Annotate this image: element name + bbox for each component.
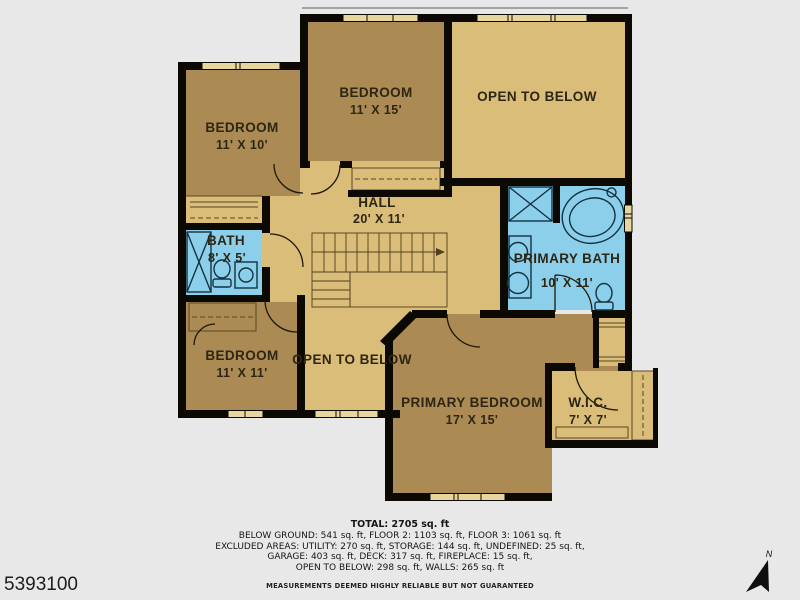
label-bath: BATH — [207, 233, 245, 248]
dims-bedroom-top-left: 11' X 10' — [216, 138, 268, 152]
label-hall: HALL — [358, 195, 396, 210]
label-primary-bath: PRIMARY BATH — [514, 251, 621, 266]
linen-closet — [599, 318, 625, 366]
area-summary: TOTAL: 2705 sq. ft BELOW GROUND: 541 sq.… — [0, 519, 800, 590]
label-bedroom-bottom-left: BEDROOM — [205, 348, 278, 363]
label-bedroom-top-left: BEDROOM — [205, 120, 278, 135]
toilet-icon — [596, 284, 612, 303]
dims-bedroom-top-center: 11' X 15' — [350, 103, 402, 117]
label-open-to-below-top: OPEN TO BELOW — [477, 89, 597, 104]
floor-plan-page: BEDROOM 11' X 10' BEDROOM 11' X 15' OPEN… — [0, 0, 800, 600]
listing-id: 5393100 — [4, 574, 78, 596]
area-line: EXCLUDED AREAS: UTILITY: 270 sq. ft, STO… — [0, 542, 800, 553]
floor-plan: BEDROOM 11' X 10' BEDROOM 11' X 15' OPEN… — [0, 0, 800, 600]
label-primary-bedroom: PRIMARY BEDROOM — [401, 395, 543, 410]
dims-primary-bedroom: 17' X 15' — [446, 413, 499, 427]
dims-primary-bath: 10' X 11' — [541, 276, 593, 290]
label-open-to-below-bottom: OPEN TO BELOW — [292, 352, 412, 367]
disclaimer: MEASUREMENTS DEEMED HIGHLY RELIABLE BUT … — [0, 582, 800, 590]
dims-bath: 8' X 5' — [208, 251, 246, 265]
area-line: GARAGE: 403 sq. ft, DECK: 317 sq. ft, FI… — [0, 552, 800, 563]
area-line: BELOW GROUND: 541 sq. ft, FLOOR 2: 1103 … — [0, 531, 800, 542]
area-line: OPEN TO BELOW: 298 sq. ft, WALLS: 265 sq… — [0, 563, 800, 574]
dims-bedroom-bottom-left: 11' X 11' — [216, 366, 267, 380]
label-bedroom-top-center: BEDROOM — [339, 85, 412, 100]
dims-wic: 7' X 7' — [569, 413, 607, 427]
label-wic: W.I.C. — [568, 395, 607, 410]
total-area: TOTAL: 2705 sq. ft — [0, 519, 800, 531]
dims-hall: 20' X 11' — [353, 212, 405, 226]
